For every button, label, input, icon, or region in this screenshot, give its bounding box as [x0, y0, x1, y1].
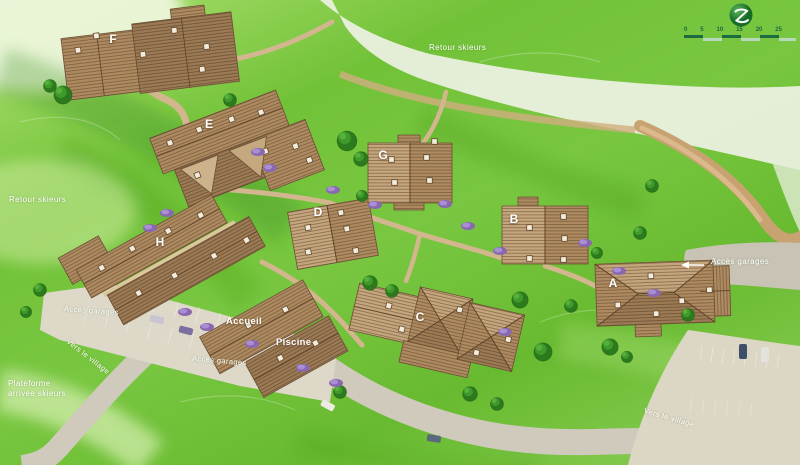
tree-icon: [33, 283, 47, 297]
tree-icon: [621, 351, 633, 363]
tree-icon: [362, 275, 377, 290]
tree-icon: [534, 343, 553, 362]
building-marker-e: E: [205, 117, 213, 131]
bush-icon: [143, 224, 157, 232]
tree-icon: [54, 86, 73, 105]
bush-icon: [461, 222, 475, 230]
tree-icon: [490, 397, 504, 411]
tree-icon: [20, 306, 32, 318]
bush-icon: [368, 201, 382, 209]
bush-icon: [200, 323, 214, 331]
tree-icon: [337, 131, 357, 151]
bush-icon: [498, 328, 512, 336]
bush-icon: [178, 308, 192, 316]
scale-bar-ticks: 0 5 10 15 20 25: [684, 27, 782, 33]
bush-icon: [296, 364, 310, 372]
tree-icon: [602, 339, 619, 356]
bush-icon: [326, 186, 340, 194]
bush-icon: [160, 209, 174, 217]
bush-icon: [578, 239, 592, 247]
building-b: [502, 197, 588, 264]
scale-bar-segments: [684, 35, 798, 42]
building-marker-h: H: [156, 235, 165, 249]
bush-icon: [245, 340, 259, 348]
tree-icon: [633, 226, 647, 240]
bush-icon: [438, 200, 452, 208]
bush-icon: [647, 289, 661, 297]
building-g: [368, 135, 452, 210]
bush-icon: [329, 379, 343, 387]
site-plan: Retour skieurs Retour skieurs Plateforme…: [0, 0, 800, 465]
building-marker-b: B: [510, 212, 519, 226]
tree-icon: [333, 385, 347, 399]
tree-icon: [681, 308, 695, 322]
tree-icon: [591, 247, 603, 259]
bush-icon: [251, 148, 265, 156]
tree-icon: [223, 93, 237, 107]
scale-bar: 0 5 10 15 20 25: [684, 27, 798, 42]
building-marker-a: A: [609, 276, 618, 290]
label-accueil: Accueil: [226, 316, 262, 327]
car-icon: [761, 347, 769, 362]
building-marker-c: C: [416, 310, 425, 324]
bush-icon: [263, 164, 277, 172]
bush-icon: [612, 267, 626, 275]
tree-icon: [385, 284, 399, 298]
tree-icon: [512, 292, 529, 309]
car-icon: [739, 344, 747, 359]
label-piscine: Piscine: [276, 337, 311, 348]
building-marker-f: F: [109, 32, 116, 46]
label-plateforme-arrivee-skieurs: Plateforme arrivée skieurs: [8, 379, 66, 398]
tree-icon: [645, 179, 659, 193]
bush-icon: [493, 247, 507, 255]
tree-icon: [356, 190, 368, 202]
site-plan-illustration: [0, 0, 800, 465]
building-marker-d: D: [314, 205, 323, 219]
label-retour-skieurs-left: Retour skieurs: [9, 195, 66, 204]
tree-icon: [564, 299, 578, 313]
building-marker-g: G: [378, 148, 387, 162]
label-acces-garages-east: Accès garages: [711, 257, 769, 266]
tree-icon: [462, 386, 477, 401]
tree-icon: [353, 151, 368, 166]
label-retour-skieurs-top: Retour skieurs: [429, 43, 486, 52]
tree-icon: [43, 79, 57, 93]
